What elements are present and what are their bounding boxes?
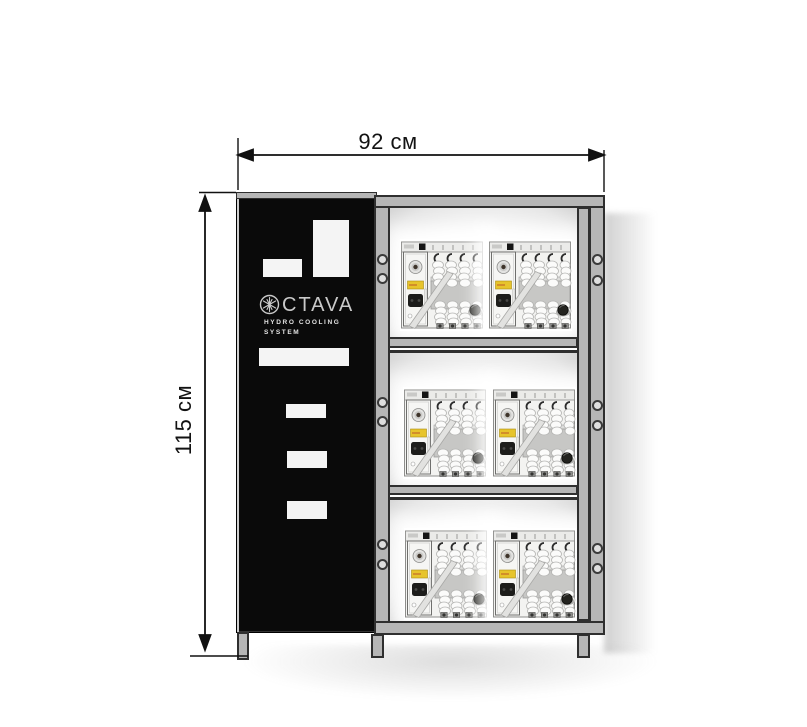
mounting-hole <box>377 397 388 408</box>
mounting-hole <box>377 416 388 427</box>
mounting-hole <box>592 275 603 286</box>
panel-cutout <box>259 348 349 366</box>
cooling-unit <box>403 387 487 479</box>
mounting-hole <box>377 559 388 570</box>
mounting-hole <box>377 273 388 284</box>
mounting-hole <box>592 420 603 431</box>
rack-leg-left <box>371 634 384 658</box>
logo-subtitle-line2: SYSTEM <box>264 329 300 336</box>
hydro-cooling-unit-icon <box>400 239 484 331</box>
hydro-cooling-unit-icon <box>492 387 576 479</box>
octava-logo: CTAVA <box>259 294 354 315</box>
rack-top-rail <box>374 195 605 208</box>
rack-bottom-rail <box>374 621 605 635</box>
cabinet-top-rail <box>236 192 377 199</box>
panel-cutout <box>313 220 349 277</box>
hydro-cooling-unit-icon <box>403 387 487 479</box>
cooling-unit <box>492 387 576 479</box>
mounting-hole <box>592 254 603 265</box>
logo-text: CTAVA <box>282 295 354 315</box>
hydro-cooling-unit-icon <box>488 239 572 331</box>
snowflake-circle-icon <box>259 294 280 315</box>
logo-subtitle-line1: HYDRO COOLING <box>264 319 340 326</box>
width-dimension-label: 92 см <box>238 129 538 155</box>
rack-shelf-edge <box>388 350 578 353</box>
cooling-unit <box>400 239 484 331</box>
rack-shelf-edge <box>388 497 578 500</box>
height-dimension-label: 115 см <box>171 360 203 480</box>
panel-cutout <box>287 451 327 468</box>
mounting-hole <box>592 400 603 411</box>
hydro-cooling-unit-icon <box>404 528 488 620</box>
cabinet-leg <box>237 632 249 660</box>
cabinet-front-panel: CTAVA HYDRO COOLING SYSTEM <box>236 196 377 633</box>
hydro-cooling-unit-icon <box>492 528 576 620</box>
cooling-unit <box>488 239 572 331</box>
panel-cutout <box>286 404 326 418</box>
cooling-unit <box>404 528 488 620</box>
mounting-hole <box>592 563 603 574</box>
rack-shelf <box>388 337 578 348</box>
drop-shadow-right <box>604 213 656 653</box>
panel-cutout <box>287 501 327 519</box>
product-dimension-diagram: CTAVA HYDRO COOLING SYSTEM <box>0 0 807 727</box>
rack-leg-right <box>577 634 590 658</box>
panel-cutout <box>263 259 302 277</box>
cooling-unit <box>492 528 576 620</box>
mounting-hole <box>377 254 388 265</box>
mounting-hole <box>592 543 603 554</box>
drop-shadow-bottom <box>240 645 660 700</box>
mounting-hole <box>377 539 388 550</box>
rack-shelf <box>388 485 578 495</box>
